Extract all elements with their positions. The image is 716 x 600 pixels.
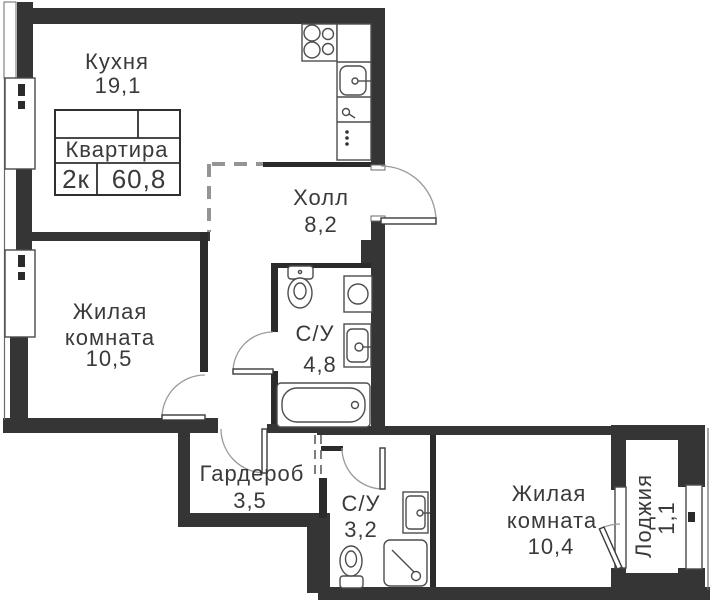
stamp-title: Квартира (65, 137, 168, 162)
room-area-living-1: 10,5 (86, 346, 133, 371)
loggia-window-right (686, 485, 702, 569)
toilet (340, 546, 363, 588)
room-area-loggia: 1,1 (654, 501, 679, 535)
bathtub (277, 383, 370, 427)
living-room-1-window (5, 250, 35, 337)
bathroom-1-door (233, 332, 273, 374)
washing-machine (344, 276, 372, 312)
outer-pilaster (4, 2, 16, 78)
floor-plan-drawing: Кухня 19,1 Холл 8,2 Жилая комната 10,5 С… (0, 0, 716, 600)
dishwasher-dots (345, 130, 349, 146)
floor-plan: Кухня 19,1 Холл 8,2 Жилая комната 10,5 С… (0, 0, 716, 600)
room-label-bathroom-1: С/У (296, 321, 335, 346)
toilet (288, 266, 313, 308)
room-label-kitchen: Кухня (85, 49, 149, 74)
room-area-bathroom-1: 4,8 (303, 352, 337, 377)
title-block: Квартира 2к 60,8 (55, 110, 180, 195)
washbasin (344, 324, 371, 367)
room-area-kitchen: 19,1 (95, 73, 142, 98)
room-area-bathroom-2: 3,2 (344, 517, 378, 542)
room-label-living-2: комната (507, 508, 597, 533)
room-label-hall: Холл (293, 185, 349, 210)
room-label-wardrobe: Гардероб (200, 461, 305, 486)
shower (384, 540, 427, 586)
room-label-bathroom-2: С/У (342, 491, 381, 516)
washbasin (403, 492, 430, 533)
entrance-door (371, 165, 436, 224)
kitchen-window (5, 78, 35, 169)
stamp-rooms-count: 2к (62, 164, 90, 194)
room-label-living-2: Жилая (512, 481, 587, 506)
room-area-living-2: 10,4 (528, 534, 575, 559)
room-area-wardrobe: 3,5 (233, 488, 267, 513)
stove (302, 24, 337, 61)
bathroom-2-door (342, 448, 385, 489)
room-area-hall: 8,2 (304, 212, 338, 237)
room-label-living-1: Жилая (73, 299, 148, 324)
living-room-1-door (162, 375, 205, 420)
room-label-loggia: Лоджия (631, 474, 656, 558)
stamp-total-area: 60,8 (112, 164, 167, 194)
